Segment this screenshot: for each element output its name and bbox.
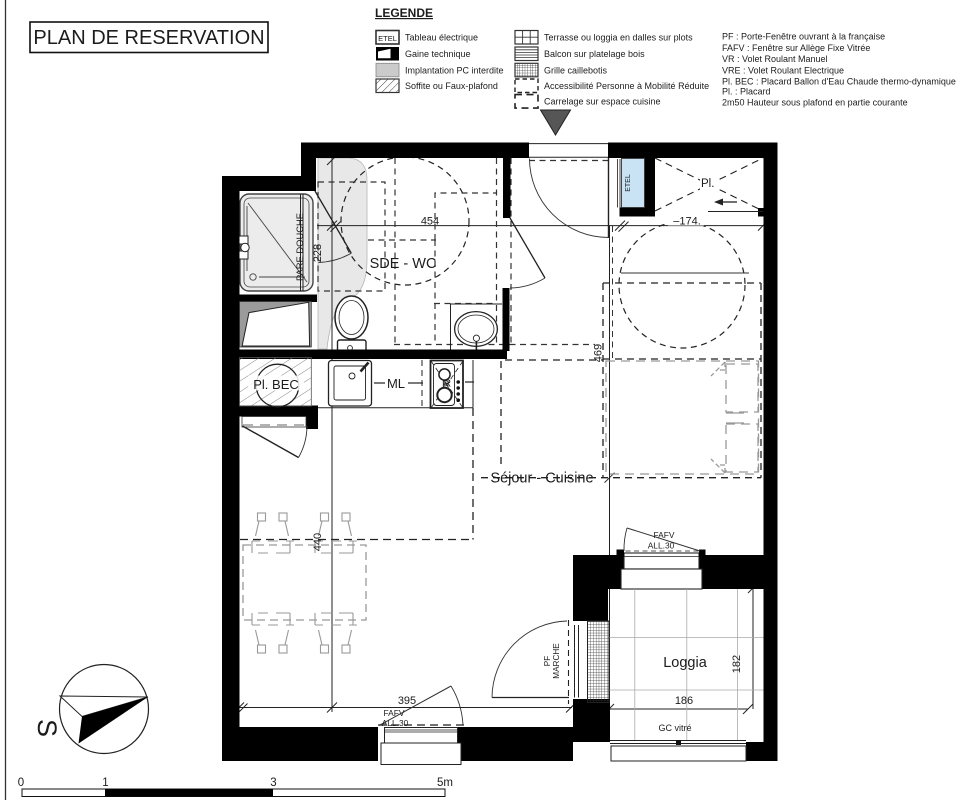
svg-text:Pl. BEC: Pl. BEC — [253, 377, 299, 392]
svg-text:5m: 5m — [437, 777, 453, 789]
svg-text:PF : Porte-Fenêtre ouvrant à l: PF : Porte-Fenêtre ouvrant à la français… — [722, 32, 885, 42]
svg-text:FAFV : Fenêtre sur Allège Fixe: FAFV : Fenêtre sur Allège Fixe Vitrée — [722, 43, 870, 53]
svg-text:ALL.30: ALL.30 — [648, 541, 675, 551]
svg-text:PLAN DE RESERVATION: PLAN DE RESERVATION — [33, 27, 264, 49]
svg-text:3: 3 — [270, 777, 276, 789]
svg-text:440: 440 — [312, 533, 324, 551]
svg-text:MARCHE: MARCHE — [552, 643, 561, 679]
svg-text:186: 186 — [675, 695, 693, 707]
svg-text:R: R — [444, 378, 452, 390]
svg-text:0: 0 — [18, 777, 24, 789]
svg-text:Grille caillebotis: Grille caillebotis — [544, 65, 608, 75]
svg-text:PF: PF — [543, 656, 552, 666]
svg-text:ALL.30: ALL.30 — [382, 718, 409, 728]
svg-text:FAFV: FAFV — [384, 708, 405, 718]
svg-text:469: 469 — [593, 344, 605, 362]
svg-text:Implantation PC interdite: Implantation PC interdite — [405, 65, 504, 75]
svg-text:1: 1 — [102, 777, 108, 789]
svg-text:Séjour - Cuisine: Séjour - Cuisine — [490, 471, 593, 487]
svg-text:S: S — [32, 719, 62, 737]
svg-text:Pl. BEC : Placard Ballon d'Eau: Pl. BEC : Placard Ballon d'Eau Chaude th… — [722, 77, 956, 87]
svg-text:LEGENDE: LEGENDE — [375, 6, 433, 20]
svg-text:–174.: –174. — [673, 216, 701, 228]
svg-text:Loggia: Loggia — [663, 655, 707, 671]
svg-text:ETEL: ETEL — [378, 34, 397, 43]
svg-text:ML: ML — [387, 376, 405, 391]
svg-text:Pl. : Placard: Pl. : Placard — [722, 86, 771, 96]
svg-text:PARE DOUCHE: PARE DOUCHE — [294, 213, 305, 281]
svg-text:Terrasse ou loggia en dalles s: Terrasse ou loggia en dalles sur plots — [544, 33, 693, 43]
svg-text:454: 454 — [421, 216, 439, 228]
svg-text:VR : Volet Roulant Manuel: VR : Volet Roulant Manuel — [722, 54, 828, 64]
svg-text:VRE : Volet Roulant Electrique: VRE : Volet Roulant Electrique — [722, 65, 844, 75]
svg-text:2m50 Hauteur sous plafond en p: 2m50 Hauteur sous plafond en partie cour… — [722, 98, 908, 108]
svg-text:Accessibilité Personne à Mobil: Accessibilité Personne à Mobilité Réduit… — [544, 81, 709, 91]
svg-text:ETEL: ETEL — [625, 174, 632, 192]
svg-text:Carrelage sur espace cuisine: Carrelage sur espace cuisine — [544, 97, 661, 107]
svg-text:395: 395 — [398, 695, 416, 707]
svg-text:SDE - WC: SDE - WC — [370, 256, 437, 272]
svg-text:Balcon sur platelage bois: Balcon sur platelage bois — [544, 49, 645, 59]
svg-text:Pl.: Pl. — [701, 178, 714, 190]
svg-text:Soffite ou Faux-plafond: Soffite ou Faux-plafond — [405, 81, 498, 91]
svg-text:Gaine technique: Gaine technique — [405, 49, 471, 59]
svg-text:182: 182 — [731, 655, 743, 673]
svg-text:228: 228 — [312, 244, 324, 262]
svg-text:Tableau électrique: Tableau électrique — [405, 33, 478, 43]
svg-text:GC vitré: GC vitré — [658, 723, 691, 733]
svg-text:FAFV: FAFV — [654, 530, 675, 540]
